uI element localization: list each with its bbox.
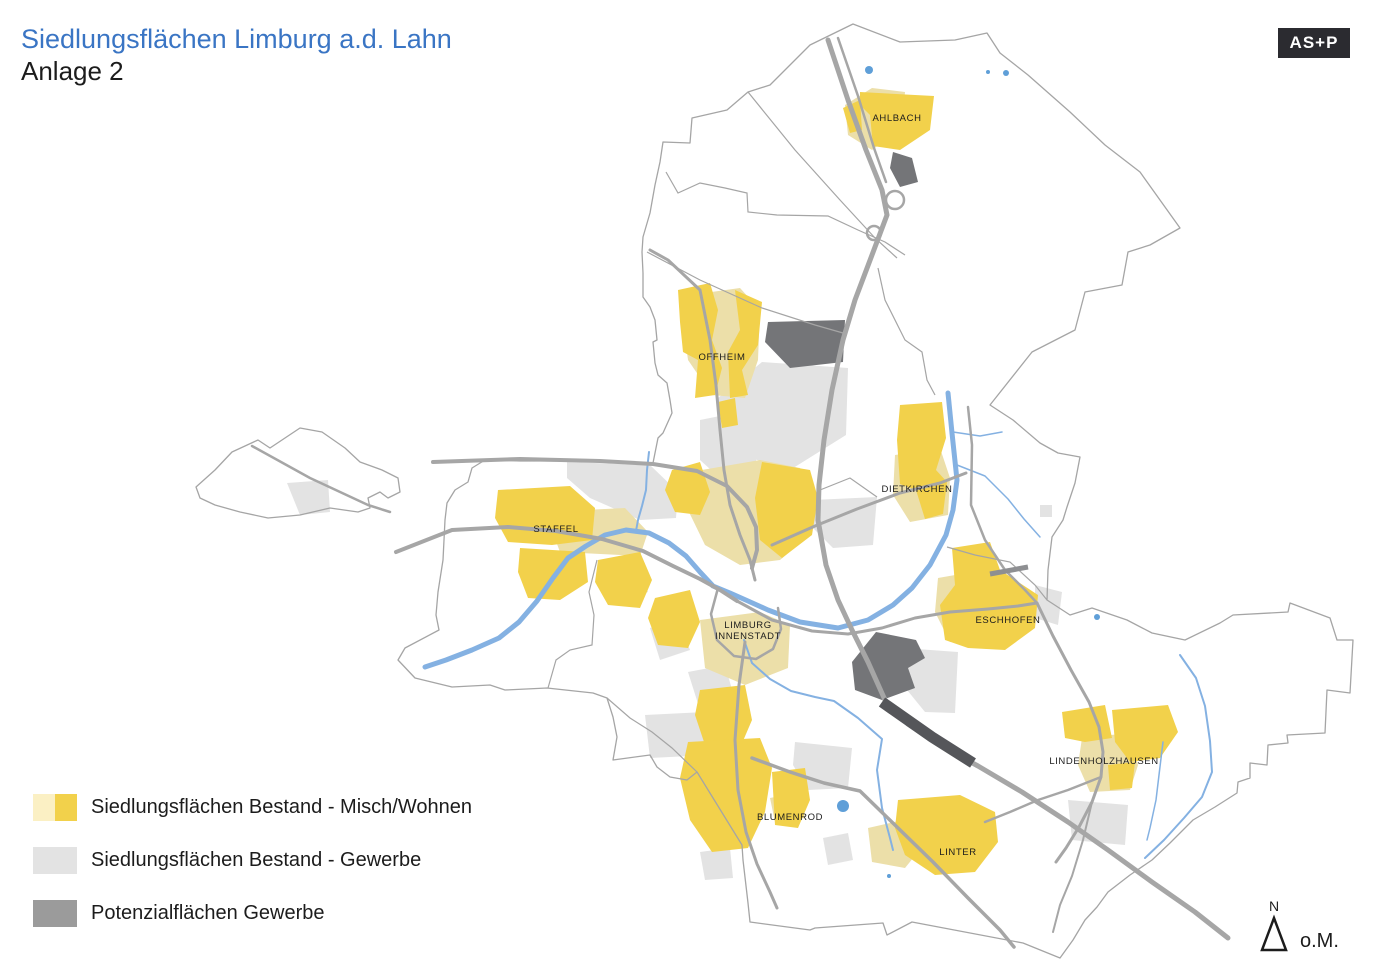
north-arrow: N o.M. [1252,898,1372,962]
scale-note: o.M. [1300,930,1339,953]
area-yellow [895,795,998,875]
road [818,40,1228,938]
map-label-dietkirchen: DIETKIRCHEN [882,484,953,495]
road-interchange-loop [886,191,904,209]
area-yellow [695,685,752,748]
district-boundary [878,268,935,395]
area-yellow [680,738,772,852]
river [953,432,1002,436]
pond [865,66,873,74]
legend-label: Siedlungsflächen Bestand - Gewerbe [91,849,421,872]
map-label-offheim: OFFHEIM [699,352,746,363]
area-dark [890,152,918,187]
legend-label: Potenzialflächen Gewerbe [91,902,324,925]
map-legend: Siedlungsflächen Bestand - Misch/Wohnen … [33,794,472,953]
legend-label: Siedlungsflächen Bestand - Misch/Wohnen [91,796,472,819]
map-label-blumenrod: BLUMENROD [757,812,823,823]
map-label-eschhofen: ESCHHOFEN [975,615,1040,626]
area-yellow [755,462,818,558]
area-yellow [595,552,652,608]
district-boundary [666,172,905,255]
area-gray [1068,800,1128,845]
map-label-linter: LINTER [939,847,976,858]
map-label-staffel: STAFFEL [533,524,578,535]
map-label-limburg: LIMBURGINNENSTADT [715,620,781,642]
legend-item-potenzialflaechen: Potenzialflächen Gewerbe [33,900,472,927]
pond [887,874,891,878]
pond [1003,70,1009,76]
pond [1094,614,1100,620]
area-gray [1040,505,1052,517]
area-gray [700,848,733,880]
pond [837,800,849,812]
page-header: Siedlungsflächen Limburg a.d. Lahn Anlag… [21,24,452,87]
legend-swatch-misch-wohnen [33,794,77,821]
pond [986,70,990,74]
page-title: Siedlungsflächen Limburg a.d. Lahn [21,24,452,56]
map-label-lindenholzhausen: LINDENHOLZHAUSEN [1049,756,1158,767]
river [957,465,1040,537]
area-yellow [1062,705,1112,742]
area-gray [823,833,853,865]
legend-swatch-gewerbe [33,847,77,874]
district-boundary [820,478,877,497]
legend-swatch-potenzialflaechen [33,900,77,927]
north-arrow-icon [1252,898,1300,962]
legend-item-misch-wohnen: Siedlungsflächen Bestand - Misch/Wohnen [33,794,472,821]
page-subtitle: Anlage 2 [21,56,452,87]
legend-item-gewerbe: Siedlungsflächen Bestand - Gewerbe [33,847,472,874]
asp-logo: AS+P [1278,28,1350,58]
map-label-ahlbach: AHLBACH [872,113,921,124]
area-dark [765,320,845,368]
